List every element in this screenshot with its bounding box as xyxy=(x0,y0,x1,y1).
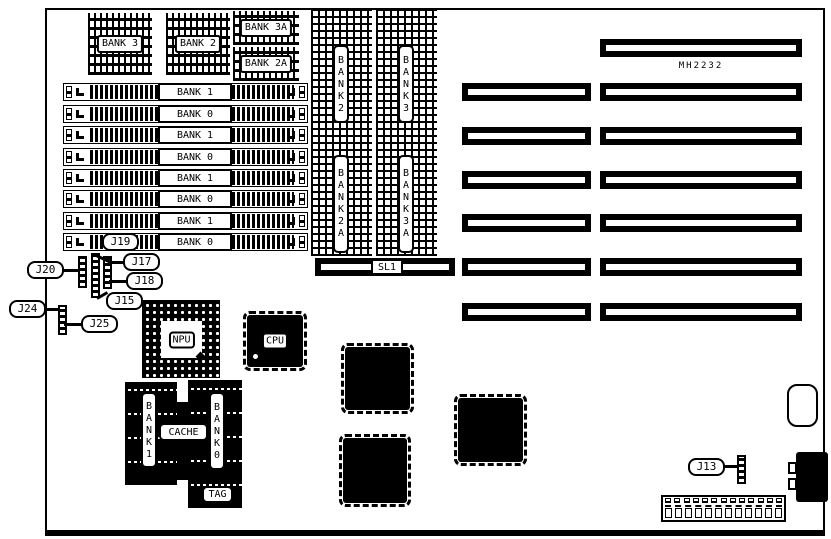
cpu-chip: CPU xyxy=(247,315,303,367)
simm-clip-right xyxy=(299,129,305,141)
simm-contacts xyxy=(90,171,158,185)
expansion-slot-long xyxy=(600,258,802,276)
jumper-label-j17: J17 xyxy=(123,253,160,271)
simm-bracket-right xyxy=(287,195,295,203)
npu-socket-center: NPU xyxy=(161,321,202,358)
dip-bank2a-block: BANK 2A xyxy=(233,47,299,81)
simm-slot-row: BANK 1 xyxy=(63,83,308,101)
simm-bracket-left xyxy=(76,238,84,246)
simm-bracket-right xyxy=(287,88,295,96)
dip-bank3-block: BANK 3 xyxy=(88,13,152,75)
simm-bracket-left xyxy=(76,174,84,182)
simm-bank-label: BANK 0 xyxy=(158,148,232,166)
cpu-pin1-dot xyxy=(253,354,258,359)
cpu-label: CPU xyxy=(262,333,288,350)
simm-bank-label: BANK 0 xyxy=(158,190,232,208)
sl1-label: SL1 xyxy=(371,259,403,275)
simm-contacts xyxy=(90,107,158,121)
simm-slot-row: BANK 1 xyxy=(63,212,308,230)
simm-bracket-left xyxy=(76,88,84,96)
cache-bank0-label: BANK0 xyxy=(209,392,225,470)
keyboard-connector xyxy=(796,452,828,502)
power-connector-divider xyxy=(665,505,782,507)
simm-bracket-left xyxy=(76,153,84,161)
simm-clip-left xyxy=(66,193,72,205)
simm-contacts xyxy=(232,192,294,206)
bank2-label: BANK 2 xyxy=(175,35,221,53)
pointer-line xyxy=(109,280,127,283)
expansion-slot-short xyxy=(462,214,591,232)
dip-bank2-block: BANK 2 xyxy=(166,13,230,75)
simm-slot-row: BANK 0 xyxy=(63,233,308,251)
bank3a-label: BANK 3A xyxy=(240,19,292,37)
simm-slot-row: BANK 0 xyxy=(63,190,308,208)
simm-bank-label: BANK 0 xyxy=(158,105,232,123)
simm-clip-left xyxy=(66,172,72,184)
expansion-slot-long xyxy=(600,214,802,232)
simm-contacts xyxy=(232,150,294,164)
simm-contacts xyxy=(90,214,158,228)
pointer-line xyxy=(109,261,124,264)
expansion-slot-short xyxy=(462,303,591,321)
jumper-label-j18: J18 xyxy=(126,272,163,290)
jumper-label-j13: J13 xyxy=(688,458,725,476)
simm-contacts xyxy=(90,85,158,99)
expansion-slot-long xyxy=(600,83,802,101)
vbank3-label: BANK3 xyxy=(398,45,414,123)
jumper-label-j19: J19 xyxy=(102,233,139,251)
simm-clip-right xyxy=(299,172,305,184)
power-connector xyxy=(661,495,786,522)
simm-contacts xyxy=(232,171,294,185)
simm-clip-left xyxy=(66,151,72,163)
simm-bracket-right xyxy=(287,131,295,139)
jumper-header-j13 xyxy=(737,455,746,484)
simm-clip-left xyxy=(66,236,72,248)
expansion-slot-short xyxy=(462,127,591,145)
npu-label: NPU xyxy=(168,331,194,348)
cache-bank1-label: BANK1 xyxy=(141,392,157,468)
simm-bank-label: BANK 1 xyxy=(158,169,232,187)
simm-bracket-right xyxy=(287,153,295,161)
component-outline xyxy=(787,384,818,427)
expansion-slot-long xyxy=(600,39,802,57)
keyboard-connector-tab xyxy=(788,462,797,474)
power-connector-sockets xyxy=(665,508,782,518)
simm-clip-right xyxy=(299,151,305,163)
motherboard-diagram: BANK 3 BANK 2 BANK 3A BANK 2A BANK 1 BAN… xyxy=(0,0,831,539)
simm-bracket-right xyxy=(287,174,295,182)
simm-contacts xyxy=(232,128,294,142)
expansion-slot-short xyxy=(462,258,591,276)
dip-bank3a-block: BANK 3A xyxy=(233,11,299,45)
simm-clip-right xyxy=(299,193,305,205)
bank3-label: BANK 3 xyxy=(97,35,143,53)
simm-clip-right xyxy=(299,108,305,120)
simm-contacts xyxy=(232,107,294,121)
simm-bank-label: BANK 0 xyxy=(158,233,232,251)
simm-bank-label: BANK 1 xyxy=(158,83,232,101)
vbank2a-label: BANK2A xyxy=(333,155,349,253)
power-connector-pins xyxy=(665,498,782,505)
jumper-header-j24-j25 xyxy=(58,305,67,335)
simm-contacts xyxy=(232,214,294,228)
simm-bracket-left xyxy=(76,195,84,203)
bank2a-label: BANK 2A xyxy=(240,55,292,73)
simm-contacts xyxy=(232,235,294,249)
simm-clip-left xyxy=(66,215,72,227)
simm-contacts xyxy=(232,85,294,99)
expansion-slot-long xyxy=(600,127,802,145)
tag-label: TAG xyxy=(202,486,233,503)
simm-bracket-right xyxy=(287,110,295,118)
simm-clip-left xyxy=(66,108,72,120)
jumper-label-j25: J25 xyxy=(81,315,118,333)
simm-clip-left xyxy=(66,129,72,141)
simm-slot-row: BANK 0 xyxy=(63,105,308,123)
simm-bracket-right xyxy=(287,238,295,246)
expansion-slot-long xyxy=(600,303,802,321)
simm-bracket-left xyxy=(76,131,84,139)
mh2232-chip-label: MH2232 xyxy=(663,61,739,71)
expansion-slot-short xyxy=(462,171,591,189)
qfp-chip xyxy=(345,347,410,410)
qfp-chip xyxy=(343,438,407,503)
simm-slot-row: BANK 0 xyxy=(63,148,308,166)
expansion-slot-short xyxy=(462,83,591,101)
jumper-header-j19-j15 xyxy=(91,253,100,298)
jumper-label-j15: J15 xyxy=(106,292,143,310)
simm-contacts xyxy=(90,150,158,164)
simm-clip-left xyxy=(66,86,72,98)
simm-slot-row: BANK 1 xyxy=(63,126,308,144)
jumper-label-j24: J24 xyxy=(9,300,46,318)
simm-bracket-left xyxy=(76,217,84,225)
jumper-header-j20 xyxy=(78,256,87,288)
simm-slot-row: BANK 1 xyxy=(63,169,308,187)
vbank2-label: BANK2 xyxy=(333,45,349,123)
vbank3a-label: BANK3A xyxy=(398,155,414,253)
simm-bracket-right xyxy=(287,217,295,225)
cache-label: CACHE xyxy=(159,423,208,441)
jumper-label-j20: J20 xyxy=(27,261,64,279)
simm-bank-label: BANK 1 xyxy=(158,126,232,144)
npu-pin1-arrow-icon xyxy=(196,352,206,362)
simm-clip-right xyxy=(299,86,305,98)
simm-contacts xyxy=(90,192,158,206)
cache-bridge xyxy=(177,402,188,480)
keyboard-connector-tab xyxy=(788,478,797,490)
simm-bank-label: BANK 1 xyxy=(158,212,232,230)
simm-clip-right xyxy=(299,215,305,227)
pointer-line xyxy=(64,323,82,326)
simm-contacts xyxy=(90,128,158,142)
npu-socket: NPU xyxy=(142,300,220,378)
simm-bracket-left xyxy=(76,110,84,118)
simm-clip-right xyxy=(299,236,305,248)
qfp-chip xyxy=(458,398,523,462)
expansion-slot-long xyxy=(600,171,802,189)
